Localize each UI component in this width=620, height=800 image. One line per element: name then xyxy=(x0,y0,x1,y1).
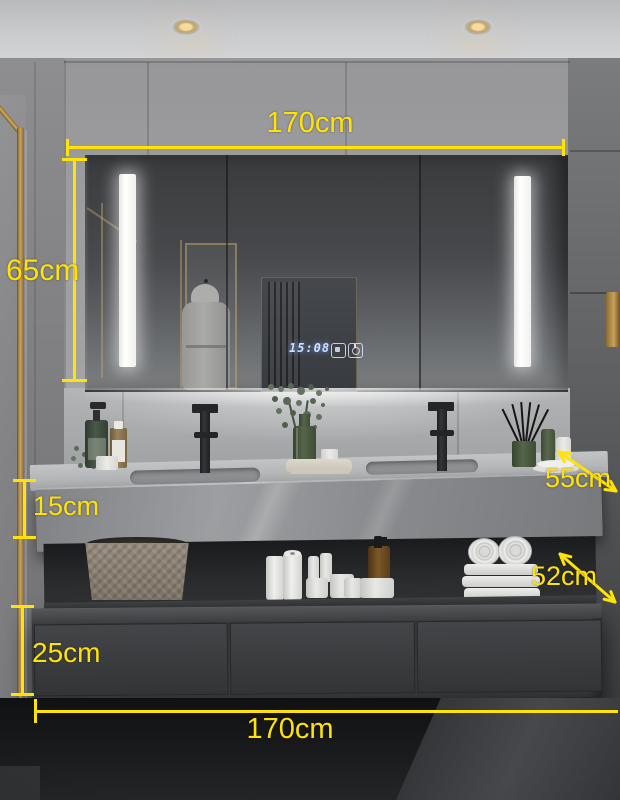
power-icon xyxy=(348,343,363,358)
gold-towel-holder-icon xyxy=(606,292,620,347)
dim-cap xyxy=(11,693,34,696)
black-faucet-icon xyxy=(428,402,456,470)
dim-label-counter-depth: 55cm xyxy=(545,464,619,494)
faucet-handle xyxy=(194,432,218,438)
reflected-gold-frame xyxy=(101,203,103,378)
candle-box-icon xyxy=(96,456,118,470)
dim-cap xyxy=(62,379,87,382)
dim-cap xyxy=(13,536,36,539)
led-strip-icon xyxy=(119,174,136,367)
robe-hook xyxy=(204,279,208,283)
woven-basket-icon xyxy=(82,543,192,600)
drawer-cabinet-icon xyxy=(32,604,603,703)
towel-stack-icon xyxy=(462,576,540,587)
dim-cap xyxy=(11,605,34,608)
led-strip-icon xyxy=(514,176,531,367)
wall-tile-seam xyxy=(64,61,570,63)
floor-tile xyxy=(0,766,40,800)
dim-label-counter-thickness: 15cm xyxy=(33,492,95,522)
dim-label-mirror-height: 65cm xyxy=(6,254,70,287)
towel-stack-icon xyxy=(464,564,538,575)
drawer-front xyxy=(417,620,603,694)
greenery-sprig-icon xyxy=(74,446,79,451)
ceiling xyxy=(0,0,620,64)
cosmetic-jar-icon xyxy=(306,578,328,598)
dim-cap xyxy=(62,158,87,161)
mirror-door-seam xyxy=(226,155,228,390)
rolled-towel-icon xyxy=(498,536,532,566)
bottle-spout xyxy=(380,537,387,540)
dim-label-shelf-depth: 52cm xyxy=(531,562,603,592)
mirror-clock: 15:08 xyxy=(289,341,337,357)
faucet-body xyxy=(200,411,210,473)
product-photo: 15:08 xyxy=(0,0,620,800)
cosmetic-jar-icon xyxy=(360,578,394,598)
eucalyptus-foliage-icon xyxy=(268,384,274,390)
toilet-paper-icon xyxy=(283,553,302,600)
reflected-slatted-door xyxy=(261,277,357,392)
ceiling-spotlight-icon xyxy=(165,15,207,39)
reed-diffuser-icon xyxy=(512,441,536,467)
power-glyph-tick xyxy=(354,344,356,348)
pump-neck xyxy=(93,410,100,421)
drawer-front xyxy=(230,621,416,695)
robe-belt xyxy=(186,345,226,348)
defog-glyph xyxy=(335,347,340,352)
dim-cap xyxy=(562,139,565,156)
dim-label-bottom-width: 170cm xyxy=(210,714,370,746)
faucet-handle xyxy=(430,430,454,436)
black-faucet-icon xyxy=(192,404,220,472)
mirror-door-seam xyxy=(419,155,421,390)
faucet-body xyxy=(437,409,447,471)
dim-cap xyxy=(34,699,37,723)
dim-label-drawer-height: 25cm xyxy=(32,638,98,669)
ceiling-spotlight-icon xyxy=(457,15,499,39)
defog-icon xyxy=(331,343,346,358)
folded-towel-icon xyxy=(290,468,350,474)
led-mirror-cabinet-icon: 15:08 xyxy=(85,155,568,392)
wall-tile-seam xyxy=(147,62,149,155)
dim-label-top-width: 170cm xyxy=(230,108,390,140)
dim-line-counter-thickness xyxy=(23,481,26,539)
toilet-paper-hole xyxy=(290,552,295,555)
right-sink xyxy=(366,459,478,475)
under-mirror-backlight xyxy=(85,388,568,406)
pump-head xyxy=(90,402,106,409)
wall-tile-seam xyxy=(570,150,620,152)
dim-cap xyxy=(13,479,36,482)
rolled-towel-icon xyxy=(468,538,500,566)
bottle-cap xyxy=(114,421,123,429)
dim-cap xyxy=(66,139,69,156)
glass-edge-highlight xyxy=(25,130,27,740)
toilet-paper-icon xyxy=(266,556,284,600)
door-slats xyxy=(268,282,300,386)
dim-line-top-width xyxy=(67,146,565,149)
dim-line-drawer-height xyxy=(21,607,24,696)
